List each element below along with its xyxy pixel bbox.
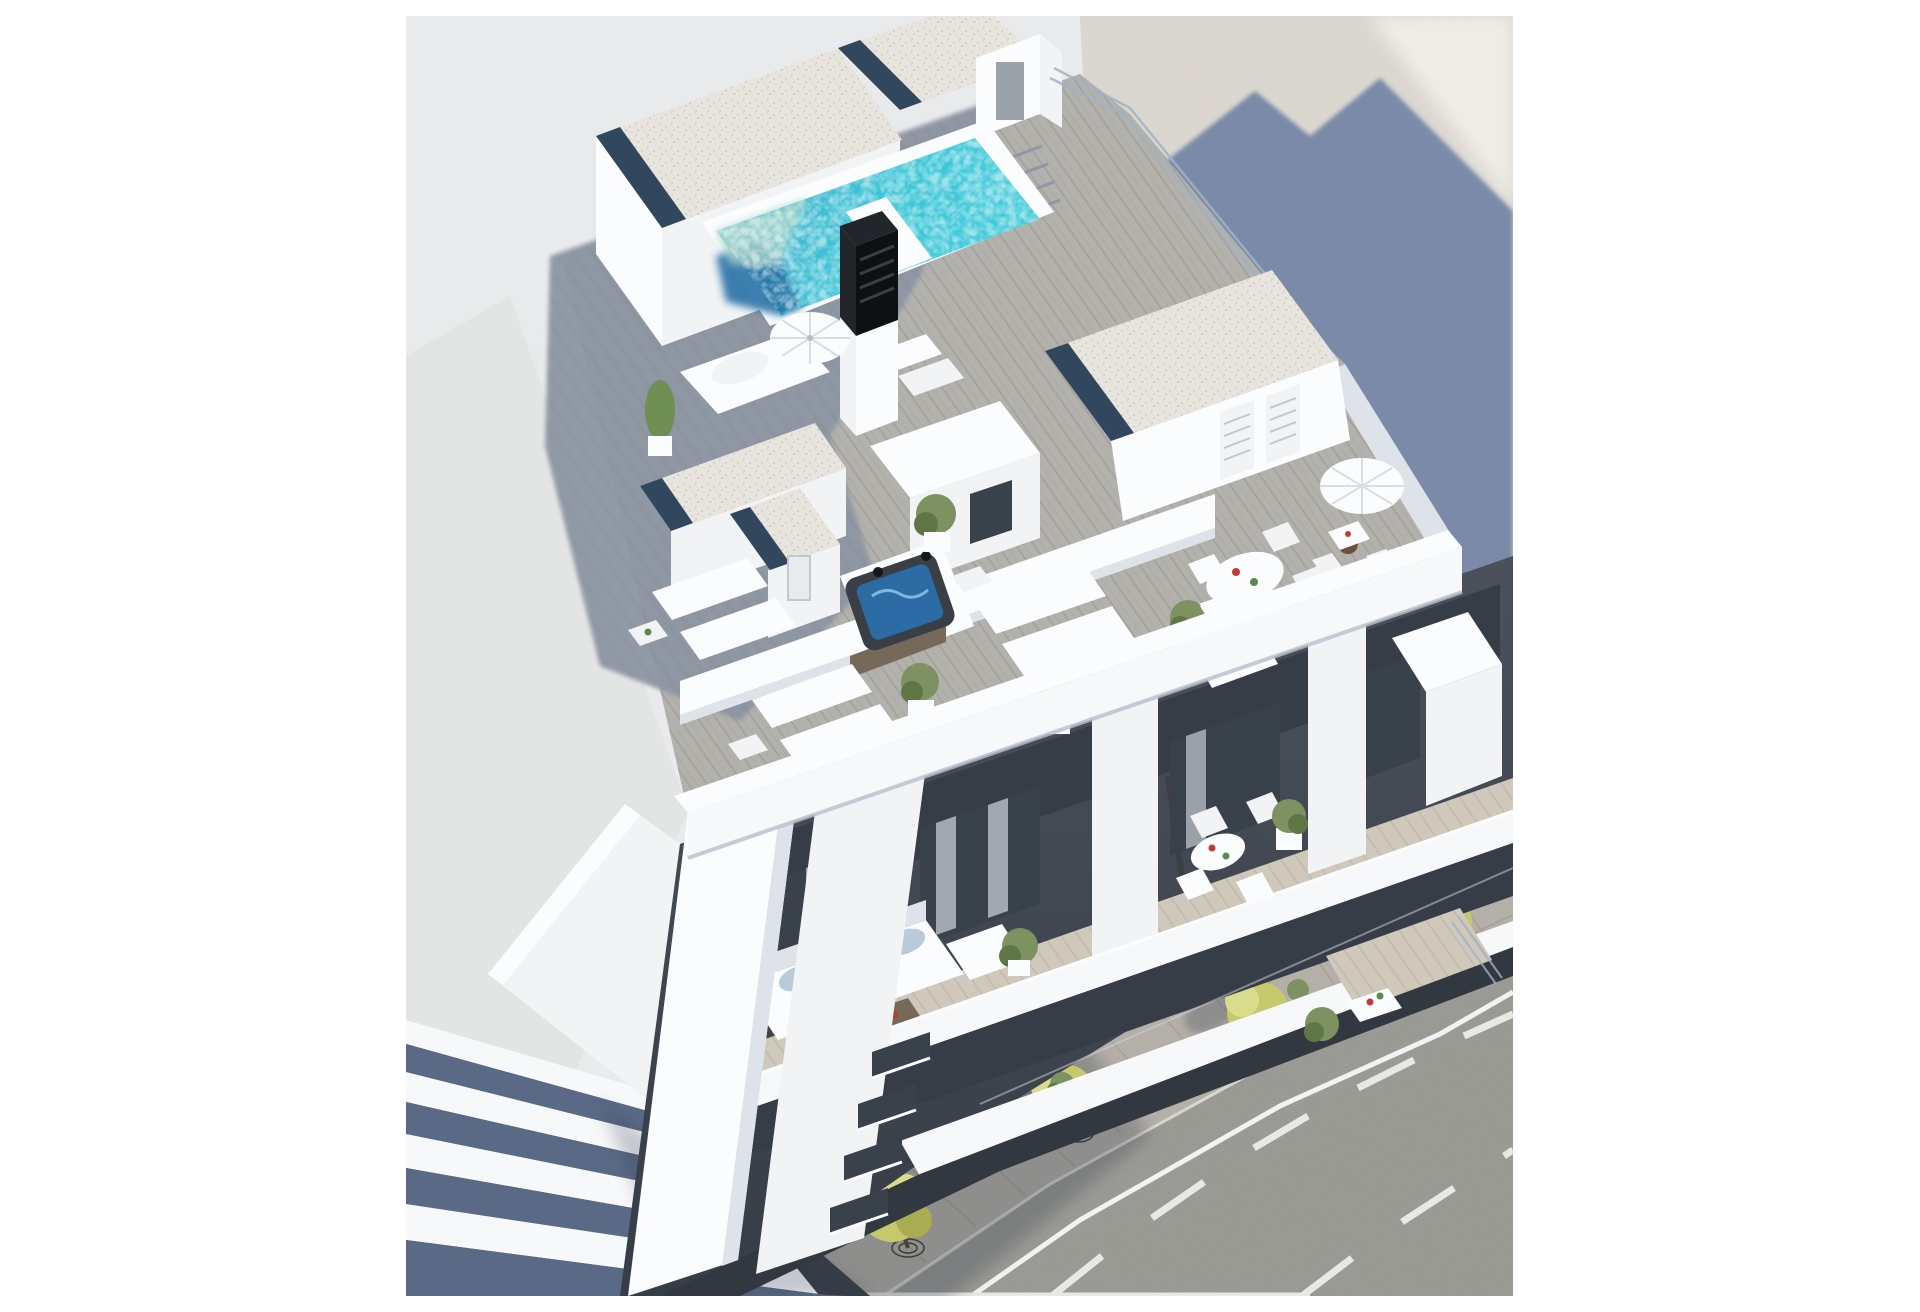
bar-accent <box>1345 531 1351 537</box>
headrest <box>873 567 883 577</box>
headrest <box>921 551 931 561</box>
chimney <box>840 211 898 436</box>
cypress-pot <box>648 436 672 456</box>
table-accent <box>1209 845 1216 852</box>
stair-door <box>996 62 1024 120</box>
table-plant <box>645 629 652 636</box>
chimney-plinth-face <box>856 320 898 436</box>
architectural-render: Aerial 3D architectural rendering of a m… <box>40 16 1920 1296</box>
corner-plant-dark <box>1304 1022 1324 1042</box>
table-accent <box>1367 999 1374 1006</box>
terrace-door <box>788 556 810 600</box>
balcony-divider-2 <box>1308 621 1366 874</box>
render-canvas: Aerial 3D architectural rendering of a m… <box>40 16 1920 1296</box>
balcony-divider <box>1092 693 1158 961</box>
table-accent <box>1250 578 1258 586</box>
cypress-tree <box>645 380 675 440</box>
table-accent <box>1232 568 1240 576</box>
table-accent <box>1223 853 1230 860</box>
parasol-open <box>770 312 850 364</box>
table-accent <box>1377 993 1384 1000</box>
